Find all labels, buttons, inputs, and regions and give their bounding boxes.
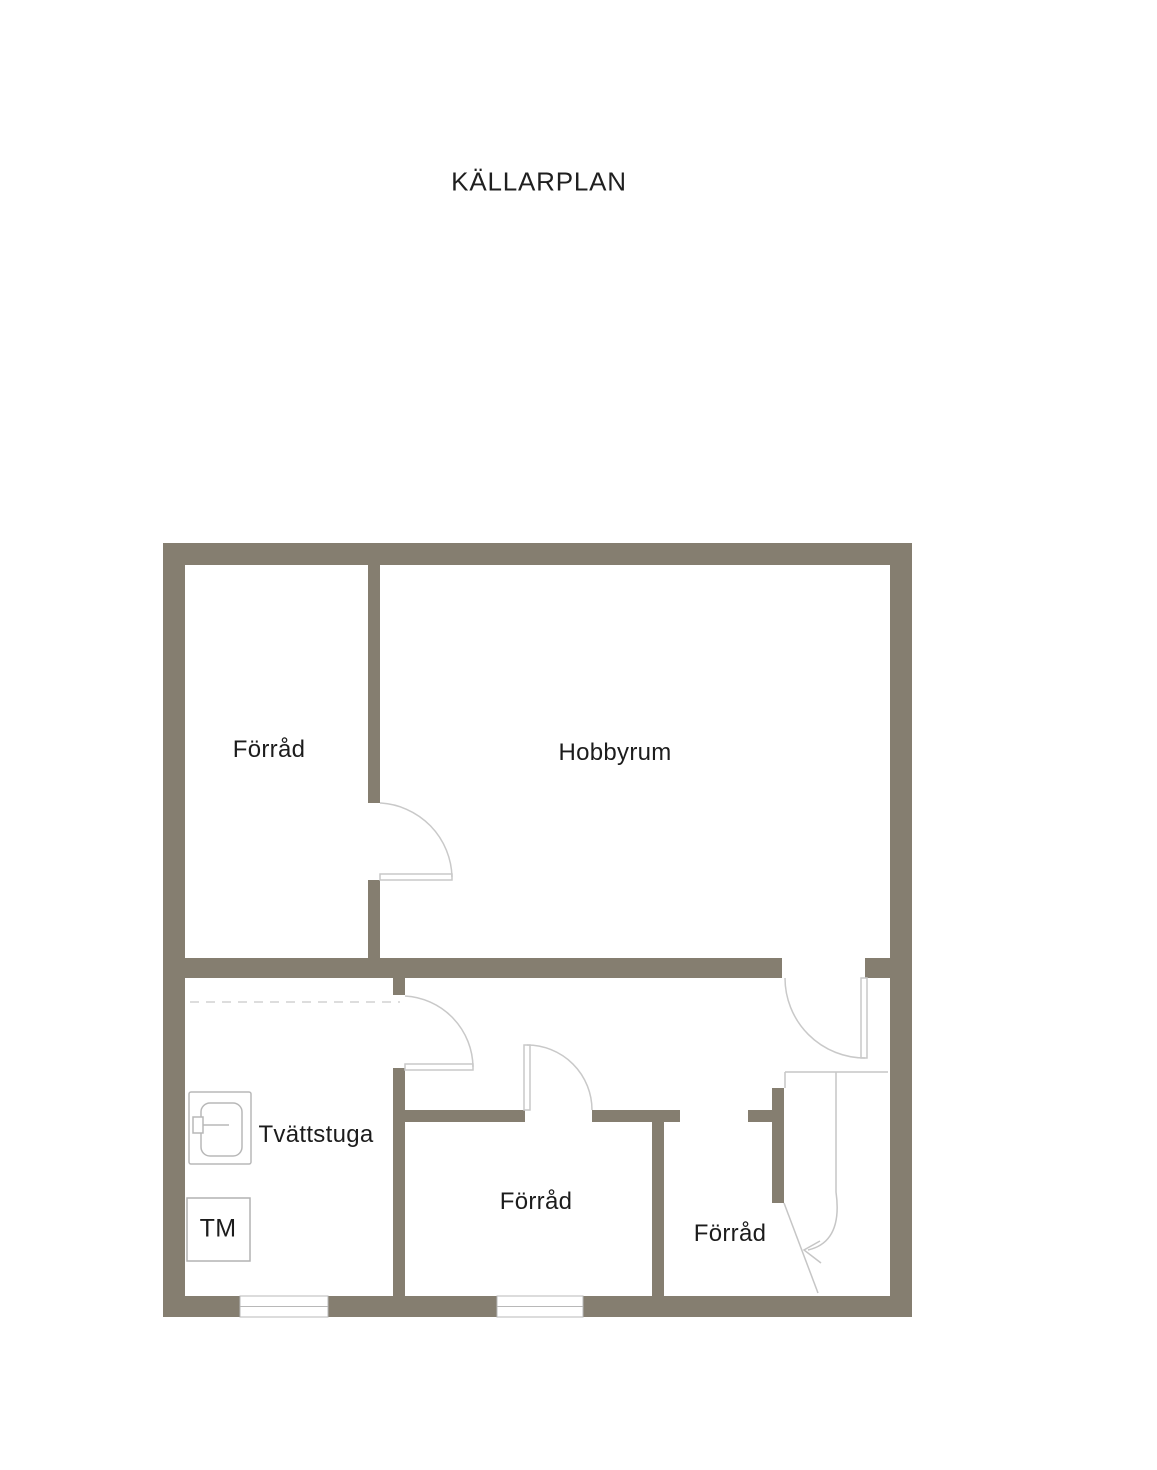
room-label-storage-bottom-right: Förråd [694, 1220, 767, 1248]
wall-divider-storage-hobby-upper [368, 565, 380, 803]
wall-t-stub-horizontal [748, 1110, 772, 1122]
wall-t-vertical [772, 1088, 784, 1203]
floor-plan-page: KÄLLARPLAN Förråd Hobbyrum Tvättstuga Fö… [0, 0, 1157, 1470]
room-label-storage-bottom-middle: Förråd [500, 1188, 573, 1216]
interior-walls [185, 565, 890, 1296]
door-leaf [380, 874, 452, 880]
door-hobby-stairs [785, 978, 867, 1058]
door-leaf [524, 1045, 530, 1110]
doors [380, 803, 867, 1110]
stair-arrowhead [804, 1241, 821, 1263]
room-label-storage-top-left: Förråd [233, 736, 306, 764]
stair-down-arrow [808, 1072, 837, 1250]
room-label-hobby-room: Hobbyrum [558, 739, 671, 767]
door-swing-arc [405, 996, 473, 1067]
wall-left [163, 543, 185, 1317]
door-swing-arc [785, 978, 865, 1058]
wall-storage-mid-right-divider [652, 1122, 664, 1296]
floor-plan-drawing [0, 0, 1157, 1470]
wall-storage-mid-top-right [592, 1110, 680, 1122]
wall-storage-mid-top-left [405, 1110, 525, 1122]
door-leaf [405, 1064, 473, 1070]
wall-divider-storage-hobby-lower [368, 880, 380, 958]
sink-basin [201, 1103, 242, 1156]
door-laundry-corridor [405, 996, 473, 1070]
door-storage-middle [524, 1045, 592, 1110]
sink-icon [189, 1092, 251, 1164]
door-storage-hobby [380, 803, 452, 880]
wall-corridor-stub-top [393, 978, 405, 995]
room-label-laundry-room: Tvättstuga [258, 1121, 373, 1149]
wall-corridor-vertical [393, 1068, 405, 1296]
washing-machine-label: TM [200, 1215, 237, 1244]
wall-top [163, 543, 912, 565]
page-title: KÄLLARPLAN [451, 167, 627, 198]
wall-middle-right-jamb [865, 958, 890, 978]
door-leaf [861, 978, 867, 1058]
door-swing-arc [527, 1045, 592, 1110]
sink-faucet-base [193, 1117, 203, 1133]
wall-right [890, 543, 912, 1317]
door-swing-arc [380, 803, 452, 877]
staircase [784, 1072, 888, 1293]
wall-middle-horizontal [185, 958, 782, 978]
